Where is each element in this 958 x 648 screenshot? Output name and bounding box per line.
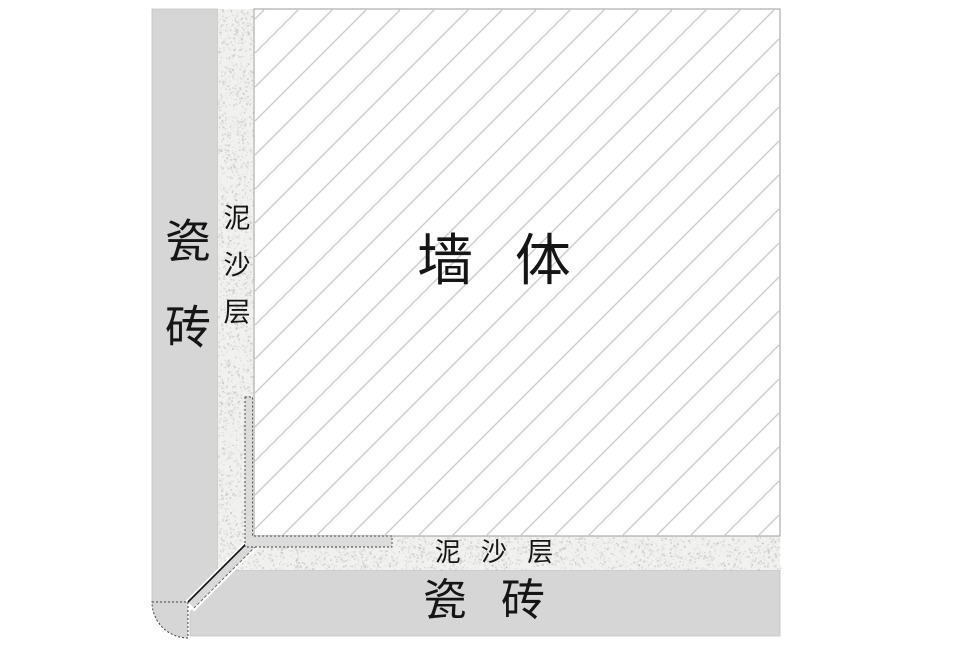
tile-installation-diagram: 墙 体 瓷砖 泥沙层 泥 沙 层 瓷 砖 [0, 0, 958, 648]
bottom-tile-label: 瓷 砖 [423, 579, 555, 623]
bottom-mortar-label: 泥 沙 层 [435, 540, 560, 566]
wall-label: 墙 体 [417, 234, 583, 290]
left-mortar-label: 泥沙层 [221, 204, 248, 345]
left-tile-label: 瓷砖 [162, 217, 208, 389]
